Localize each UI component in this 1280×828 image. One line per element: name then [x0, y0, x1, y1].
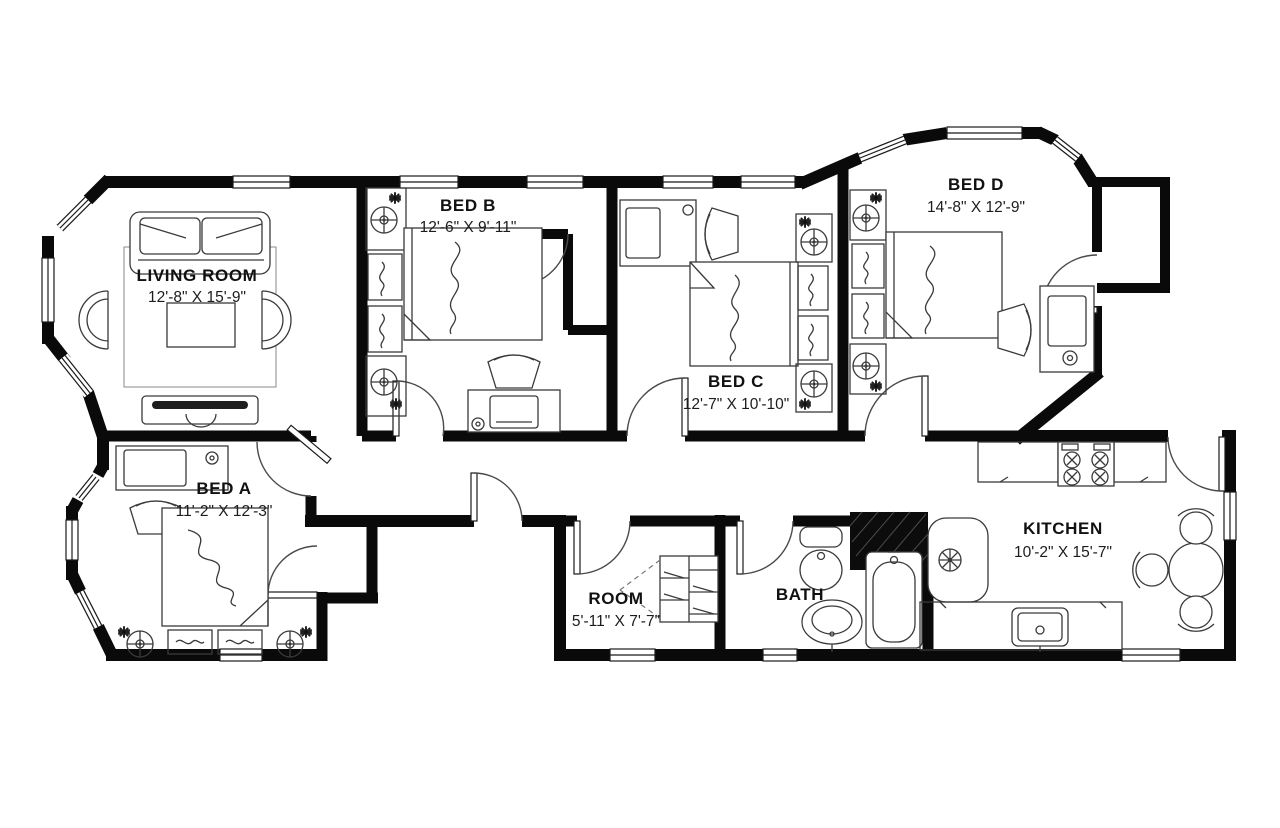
room-bed-d	[850, 190, 1094, 394]
ceiling-fan-icon	[801, 229, 827, 255]
dining-chair	[1178, 509, 1214, 544]
plant-icon	[390, 193, 400, 203]
door-kitchen	[1168, 437, 1225, 491]
bed	[690, 262, 798, 366]
ceiling-fan-icon	[853, 205, 879, 231]
label-bed-b: BED B	[440, 196, 496, 215]
dining-chair	[1178, 596, 1214, 631]
door-entrance	[471, 473, 522, 521]
tv-console	[142, 396, 258, 427]
dining-chair	[1133, 552, 1168, 588]
desk	[468, 390, 560, 432]
dims-living-room: 12'-8" X 15'-9"	[148, 289, 246, 306]
desk	[1040, 286, 1094, 372]
nightstand	[798, 266, 828, 360]
bed	[162, 508, 268, 626]
plant-icon	[800, 217, 810, 227]
door-bath	[737, 521, 793, 574]
bathtub	[866, 552, 922, 648]
water-heater	[928, 518, 988, 602]
toilet	[800, 527, 842, 590]
desk	[620, 200, 696, 266]
door-bed-c	[627, 378, 688, 436]
dims-bed-c: 12'-7" X 10'-10"	[683, 396, 790, 413]
ceiling-fan-icon	[371, 369, 397, 395]
plant-icon	[800, 399, 810, 409]
door-room	[574, 521, 630, 574]
dining-table	[1133, 509, 1223, 631]
label-bed-a: BED A	[196, 479, 251, 498]
door-bed-a-closet	[268, 546, 317, 598]
ceiling-fan-icon	[371, 207, 397, 233]
dims-kitchen: 10'-2" X 15'-7"	[1014, 544, 1112, 561]
dims-bed-a: 11'-2" X 12'-3"	[176, 503, 273, 520]
label-kitchen: KITCHEN	[1023, 519, 1103, 538]
desk-chair	[998, 304, 1031, 356]
ceiling-fan-icon	[127, 631, 153, 657]
floor-plan-page: LIVING ROOM 12'-8" X 15'-9" BED B 12'-6"…	[0, 0, 1280, 828]
plant-icon	[871, 381, 881, 391]
room-bed-a	[116, 446, 311, 657]
plant-icon	[391, 399, 401, 409]
ceiling-fan-icon	[801, 371, 827, 397]
door-bed-b	[393, 381, 444, 436]
nightstand	[852, 244, 884, 338]
armchair-left	[79, 291, 108, 349]
desk-chair	[705, 208, 738, 260]
coffee-table	[167, 303, 235, 347]
sofa	[130, 212, 270, 274]
closet-shelf	[660, 556, 718, 622]
floor-plan-canvas: LIVING ROOM 12'-8" X 15'-9" BED B 12'-6"…	[0, 0, 1280, 828]
ceiling-fan-icon	[853, 353, 879, 379]
dims-bed-d: 14'-8" X 12'-9"	[927, 199, 1025, 216]
nightstand	[368, 254, 402, 352]
stove	[1058, 442, 1114, 486]
label-bed-c: BED C	[708, 372, 764, 391]
dims-bed-b: 12'-6" X 9'-11"	[420, 219, 517, 236]
dims-room: 5'-11" X 7'-7"	[572, 613, 660, 630]
plant-icon	[871, 193, 881, 203]
ceiling-fan-icon	[277, 631, 303, 657]
label-room: ROOM	[588, 589, 643, 608]
bed	[404, 228, 542, 340]
room-living	[79, 212, 291, 427]
desk-chair	[488, 355, 540, 388]
plant-icon	[301, 627, 311, 637]
label-living-room: LIVING ROOM	[137, 266, 258, 285]
label-bath: BATH	[776, 585, 824, 604]
plant-icon	[119, 627, 129, 637]
bathroom-sink	[802, 600, 862, 652]
armchair-right	[262, 291, 291, 349]
bed	[886, 232, 1002, 338]
label-bed-d: BED D	[948, 175, 1004, 194]
kitchen-sink	[1012, 608, 1068, 652]
